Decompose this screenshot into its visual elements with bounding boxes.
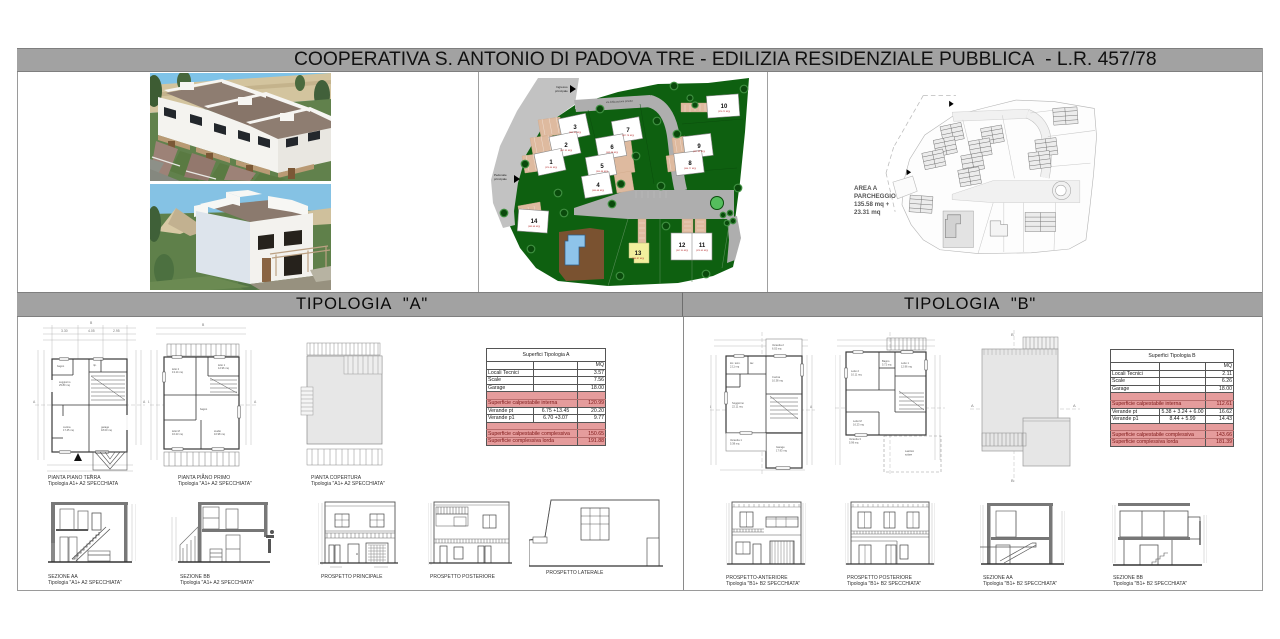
svg-text:(342.40 MQ): (342.40 MQ) xyxy=(569,132,582,134)
svg-text:Veranda 1: Veranda 1 xyxy=(730,438,742,442)
svg-text:16.23 mq: 16.23 mq xyxy=(853,423,864,427)
svg-text:17.45 mq: 17.45 mq xyxy=(63,428,74,432)
svg-text:Cucina: Cucina xyxy=(772,375,781,379)
svg-text:A: A xyxy=(254,400,257,404)
svg-text:23.31 mq: 23.31 mq xyxy=(854,209,881,216)
svg-text:(340.48 MQ): (340.48 MQ) xyxy=(592,190,605,192)
svg-text:PARCHEGGIO: PARCHEGGIO xyxy=(854,193,896,200)
svg-text:B: B xyxy=(90,321,93,325)
svg-text:(327.78 MQ): (327.78 MQ) xyxy=(622,135,635,137)
svg-text:A: A xyxy=(1073,403,1076,408)
svg-text:Garage: Garage xyxy=(776,445,785,449)
svg-text:loc. tecn.: loc. tecn. xyxy=(730,361,741,365)
svg-text:Letto 2: Letto 2 xyxy=(851,369,859,373)
svg-text:bagno: bagno xyxy=(57,364,65,368)
svg-text:A: A xyxy=(143,400,146,404)
svg-text:12.96 mq: 12.96 mq xyxy=(901,365,912,369)
svg-text:principale: principale xyxy=(555,89,568,93)
svg-text:10.98 mq: 10.98 mq xyxy=(214,432,225,436)
svg-text:(349.38 MQ): (349.38 MQ) xyxy=(606,152,619,154)
svg-text:4.05: 4.05 xyxy=(88,329,95,333)
svg-text:(343.97 MQ): (343.97 MQ) xyxy=(632,258,645,260)
svg-text:18.00 mq: 18.00 mq xyxy=(101,428,112,432)
svg-text:10: 10 xyxy=(721,104,728,110)
svg-text:A: A xyxy=(971,403,974,408)
svg-text:A: A xyxy=(33,400,36,404)
svg-text:12.96 mq: 12.96 mq xyxy=(218,366,229,370)
svg-text:(370.54 MQ): (370.54 MQ) xyxy=(545,167,558,169)
svg-text:12: 12 xyxy=(679,243,686,249)
svg-text:rip.: rip. xyxy=(93,363,97,367)
svg-text:A: A xyxy=(148,400,150,404)
svg-text:13: 13 xyxy=(635,251,642,257)
svg-text:solare: solare xyxy=(905,453,913,457)
svg-text:5.38 mq: 5.38 mq xyxy=(730,442,740,446)
svg-text:(373.43 MQ): (373.43 MQ) xyxy=(696,250,709,252)
svg-text:6.02 mq: 6.02 mq xyxy=(772,347,782,351)
svg-text:(383.08 MQ): (383.08 MQ) xyxy=(528,226,541,228)
svg-text:B: B xyxy=(1011,332,1014,337)
svg-text:bagno: bagno xyxy=(200,407,208,411)
svg-text:lav.: lav. xyxy=(750,361,754,365)
svg-text:13.14 mq: 13.14 mq xyxy=(172,370,183,374)
svg-text:25.80 mq: 25.80 mq xyxy=(59,383,70,387)
svg-text:(370.72 MQ): (370.72 MQ) xyxy=(718,111,731,113)
svg-text:14: 14 xyxy=(531,219,538,225)
svg-text:Lastrico: Lastrico xyxy=(905,449,915,453)
svg-text:Letto M: Letto M xyxy=(853,419,862,423)
svg-text:Soggiorno: Soggiorno xyxy=(732,401,744,405)
svg-text:10.11 mq: 10.11 mq xyxy=(851,373,862,377)
svg-text:principale: principale xyxy=(494,177,507,181)
svg-text:B: B xyxy=(1011,478,1014,483)
svg-text:(350.38 MQ): (350.38 MQ) xyxy=(596,171,609,173)
svg-text:17.93 mq: 17.93 mq xyxy=(776,449,787,453)
svg-text:(367.32 MQ): (367.32 MQ) xyxy=(560,150,573,152)
svg-text:11: 11 xyxy=(699,243,706,249)
svg-text:Veranda 3: Veranda 3 xyxy=(849,437,861,441)
svg-text:B: B xyxy=(202,323,205,327)
svg-text:(327.33 MQ): (327.33 MQ) xyxy=(693,151,706,153)
svg-text:135.58 mq +: 135.58 mq + xyxy=(854,201,890,208)
svg-text:(357.30 MQ): (357.30 MQ) xyxy=(676,250,689,252)
svg-text:Bagno: Bagno xyxy=(882,359,890,363)
svg-text:Letto 1: Letto 1 xyxy=(901,361,909,365)
svg-text:A: A xyxy=(810,405,813,409)
svg-text:10.38 mq: 10.38 mq xyxy=(772,379,783,383)
svg-text:Veranda 2: Veranda 2 xyxy=(772,343,784,347)
svg-text:16.23 mq: 16.23 mq xyxy=(172,432,183,436)
svg-text:5.99 mq: 5.99 mq xyxy=(849,441,859,445)
svg-text:3.30: 3.30 xyxy=(61,329,68,333)
svg-text:A: A xyxy=(710,405,712,409)
svg-text:5.72 mq: 5.72 mq xyxy=(882,363,892,367)
svg-text:22.11 mq: 22.11 mq xyxy=(732,405,743,409)
svg-text:2.11 mq: 2.11 mq xyxy=(730,365,740,369)
svg-text:(344.77 MQ): (344.77 MQ) xyxy=(684,168,697,170)
svg-text:2.95: 2.95 xyxy=(113,329,120,333)
svg-text:AREA A: AREA A xyxy=(854,185,878,192)
